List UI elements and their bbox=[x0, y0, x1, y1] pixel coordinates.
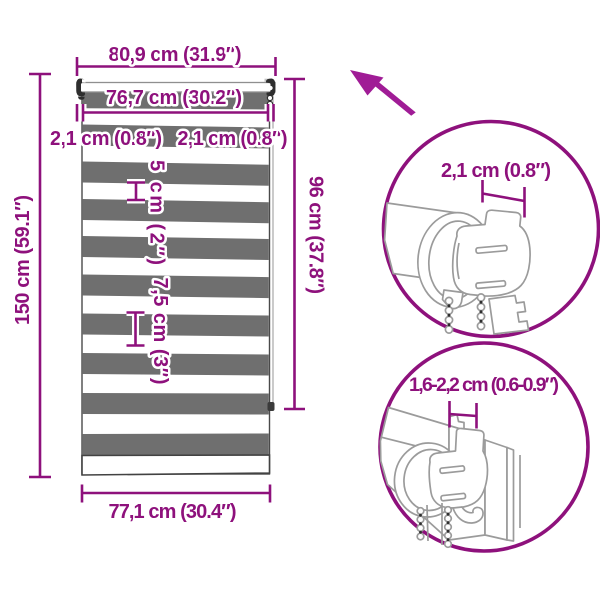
svg-text:96 cm (37.8″): 96 cm (37.8″) bbox=[305, 176, 327, 294]
svg-text:77,1 cm (30.4″): 77,1 cm (30.4″) bbox=[109, 501, 237, 523]
svg-text:1,6-2,2 cm (0.6-0.9″): 1,6-2,2 cm (0.6-0.9″) bbox=[409, 374, 559, 396]
svg-text:5 cm (2″): 5 cm (2″) bbox=[146, 160, 168, 265]
svg-text:2,1 cm (0.8″): 2,1 cm (0.8″) bbox=[441, 160, 551, 182]
svg-text:150 cm (59.1″): 150 cm (59.1″) bbox=[12, 195, 34, 325]
svg-text:2,1 cm (0.8″): 2,1 cm (0.8″) bbox=[50, 128, 162, 150]
svg-text:80,9 cm (31.9″): 80,9 cm (31.9″) bbox=[109, 44, 242, 66]
svg-text:7,5 cm (3″): 7,5 cm (3″) bbox=[149, 278, 171, 385]
svg-text:2,1 cm (0.8″): 2,1 cm (0.8″) bbox=[178, 128, 288, 150]
svg-text:76,7 cm (30.2″): 76,7 cm (30.2″) bbox=[106, 87, 242, 109]
